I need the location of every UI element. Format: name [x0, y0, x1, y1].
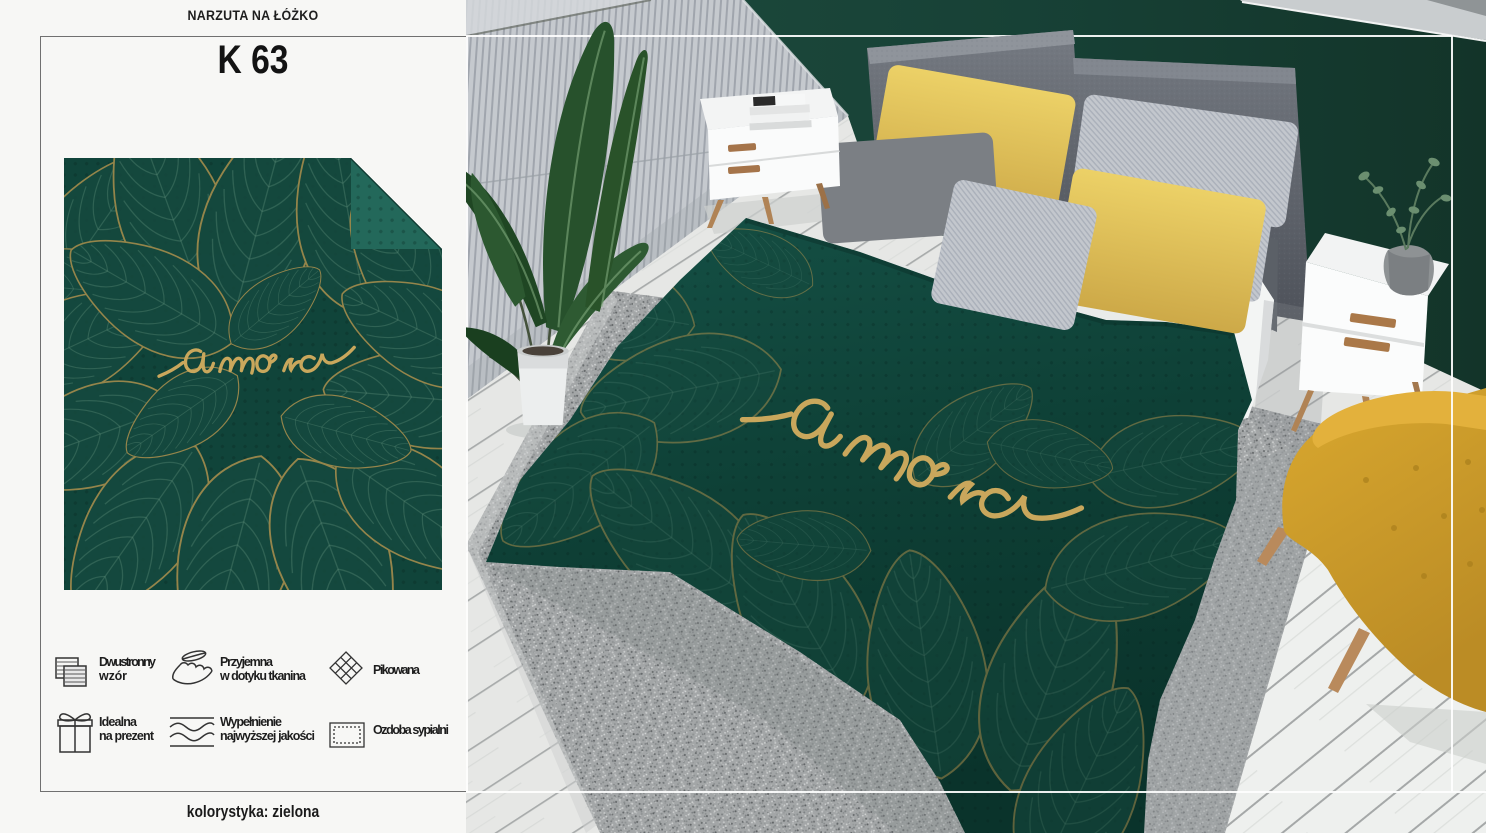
svg-text:Wypełnienie: Wypełnienie	[220, 715, 282, 729]
svg-text:Pikowana: Pikowana	[373, 663, 421, 677]
svg-text:wzór: wzór	[98, 669, 127, 683]
svg-text:Ozdoba sypialni: Ozdoba sypialni	[373, 723, 449, 737]
svg-text:Przyjemna: Przyjemna	[220, 655, 274, 669]
svg-text:Idealna: Idealna	[99, 715, 138, 729]
svg-text:w dotyku tkanina: w dotyku tkanina	[219, 669, 307, 683]
svg-text:Dwustronny: Dwustronny	[99, 655, 156, 669]
svg-text:na prezent: na prezent	[99, 729, 155, 743]
svg-text:najwyższej jakości: najwyższej jakości	[220, 729, 315, 743]
